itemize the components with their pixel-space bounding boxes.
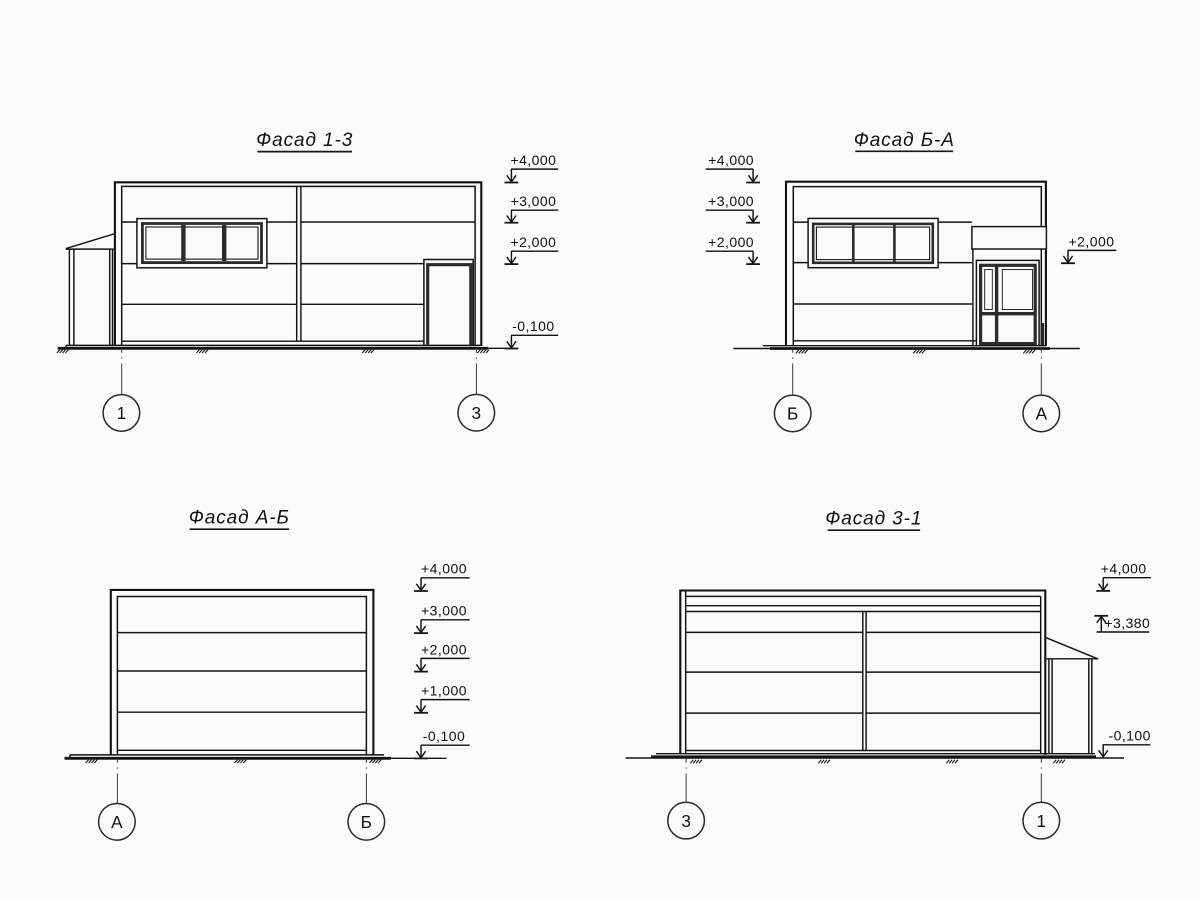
svg-text:+2,000: +2,000: [510, 234, 556, 250]
svg-text:+2,000: +2,000: [421, 641, 467, 657]
svg-text:+4,000: +4,000: [510, 152, 556, 168]
svg-text:А: А: [1036, 404, 1048, 424]
svg-text:Фасад Б-А: Фасад Б-А: [854, 130, 955, 151]
svg-text:+4,000: +4,000: [1101, 561, 1147, 577]
svg-text:+3,000: +3,000: [421, 603, 467, 619]
svg-text:-0,100: -0,100: [512, 318, 554, 334]
svg-text:3: 3: [472, 403, 482, 423]
svg-text:+3,000: +3,000: [708, 193, 754, 209]
svg-text:+2,000: +2,000: [708, 234, 754, 250]
svg-text:А: А: [111, 812, 123, 832]
svg-text:+2,000: +2,000: [1069, 233, 1115, 249]
svg-text:Фасад 3-1: Фасад 3-1: [825, 508, 922, 529]
svg-text:1: 1: [1037, 811, 1047, 831]
svg-text:3: 3: [681, 811, 691, 831]
svg-text:Б: Б: [787, 404, 798, 424]
svg-text:+3,380: +3,380: [1104, 615, 1150, 631]
svg-text:1: 1: [117, 403, 127, 423]
svg-text:+1,000: +1,000: [421, 683, 467, 699]
svg-text:+4,000: +4,000: [421, 561, 467, 577]
svg-text:+3,000: +3,000: [510, 193, 556, 209]
svg-text:-0,100: -0,100: [423, 728, 465, 744]
svg-text:Фасад 1-3: Фасад 1-3: [256, 130, 353, 151]
svg-text:-0,100: -0,100: [1108, 728, 1150, 744]
svg-text:Фасад А-Б: Фасад А-Б: [189, 508, 290, 529]
svg-text:+4,000: +4,000: [708, 152, 754, 168]
svg-text:Б: Б: [361, 812, 372, 832]
